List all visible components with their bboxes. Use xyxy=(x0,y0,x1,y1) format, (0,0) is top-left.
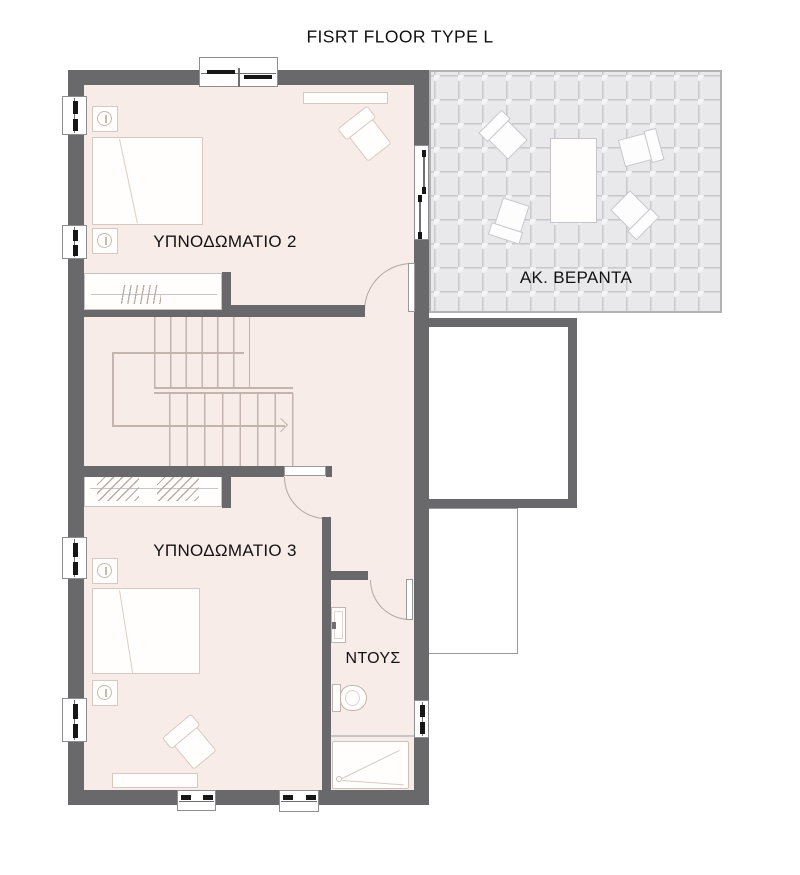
nightstand xyxy=(92,558,118,584)
lamp-icon xyxy=(97,233,112,248)
wall-closet2-back xyxy=(84,310,222,317)
faucet-icon xyxy=(332,622,336,629)
wall-closet2-divider xyxy=(222,272,231,317)
sink xyxy=(331,607,346,643)
window-north xyxy=(199,57,278,87)
label-veranda: ΑΚ. ΒΕΡΑΝΤΑ xyxy=(520,268,632,288)
nightstand xyxy=(92,228,118,254)
shower-tray xyxy=(332,741,409,789)
stairs-lower-flight xyxy=(169,393,294,467)
bed-bedroom2 xyxy=(92,137,203,225)
label-bedroom2: ΥΠΝΟΔΩΜΑΤΙΟ 2 xyxy=(153,232,296,252)
wall-west xyxy=(68,70,84,805)
lamp-icon xyxy=(97,111,112,126)
wall-bathroom-west xyxy=(322,517,331,790)
void-wall-north xyxy=(429,318,577,327)
bed-sheet-fold xyxy=(119,590,133,673)
toilet-bowl xyxy=(340,685,367,711)
wall-bedroom2-south xyxy=(222,305,365,317)
stairs-mid-rail xyxy=(154,387,293,389)
veranda-table xyxy=(550,138,597,223)
bed-bedroom3 xyxy=(92,588,200,674)
window-south-2 xyxy=(279,790,319,812)
desk-bedroom3 xyxy=(112,773,198,788)
wall-bedroom3-north xyxy=(80,466,284,477)
nightstand xyxy=(92,106,118,132)
wall-south xyxy=(68,790,429,805)
door-leaf-bedroom2 xyxy=(408,263,415,312)
hanger-marks-icon xyxy=(119,285,161,304)
floor-plan: FISRT FLOOR TYPE L xyxy=(0,0,800,875)
hanger-marks-icon xyxy=(97,477,139,501)
window-west-1 xyxy=(62,96,87,135)
wall-bathroom-north xyxy=(322,571,368,580)
nightstand xyxy=(92,680,118,706)
page-title: FISRT FLOOR TYPE L xyxy=(306,27,493,48)
lamp-icon xyxy=(97,563,112,578)
sliding-door-veranda xyxy=(414,145,429,240)
stairs-walk-line xyxy=(112,352,244,354)
roof-outline-below xyxy=(429,508,518,654)
void-wall-east xyxy=(568,318,577,508)
window-west-3 xyxy=(62,537,87,579)
door-leaf-bedroom3 xyxy=(284,466,326,476)
stairs-walk-line xyxy=(112,352,114,426)
door-leaf-bathroom xyxy=(406,579,413,620)
window-west-4 xyxy=(62,698,87,742)
closet-bedroom2 xyxy=(84,273,222,310)
window-west-2 xyxy=(62,225,87,259)
wall-closet3-divider xyxy=(222,466,231,508)
shelf-bedroom2 xyxy=(303,92,388,104)
label-bedroom3: ΥΠΝΟΔΩΜΑΤΙΟ 3 xyxy=(153,541,296,561)
shower-screen xyxy=(331,735,414,737)
wall-bedroom3-north-end xyxy=(326,466,332,477)
hanger-marks-icon xyxy=(157,477,199,501)
void-wall-south xyxy=(429,499,577,508)
label-shower: ΝΤΟΥΣ xyxy=(345,650,400,668)
window-south-1 xyxy=(177,790,216,811)
bed-sheet-fold xyxy=(119,139,138,223)
window-bathroom xyxy=(414,700,429,738)
lamp-icon xyxy=(97,685,112,700)
